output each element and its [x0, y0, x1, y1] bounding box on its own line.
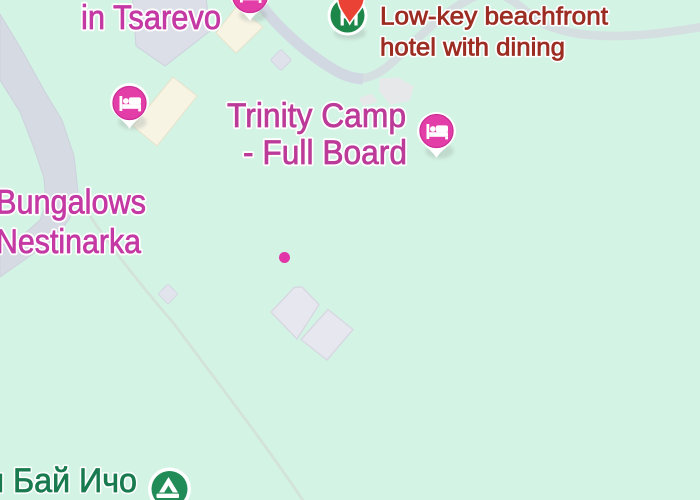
svg-text:in Tsarevo: in Tsarevo [81, 0, 221, 37]
svg-text:Trinity Camp: Trinity Camp [227, 97, 406, 135]
svg-text:Nestinarka: Nestinarka [0, 223, 141, 261]
svg-text:- Full Board: - Full Board [243, 134, 407, 172]
svg-text:hotel with dining: hotel with dining [380, 34, 565, 62]
svg-text:Low-key beachfront: Low-key beachfront [380, 3, 608, 31]
svg-text:Bungalows: Bungalows [0, 184, 146, 222]
svg-text:и Бай Ичо: и Бай Ичо [0, 462, 137, 500]
